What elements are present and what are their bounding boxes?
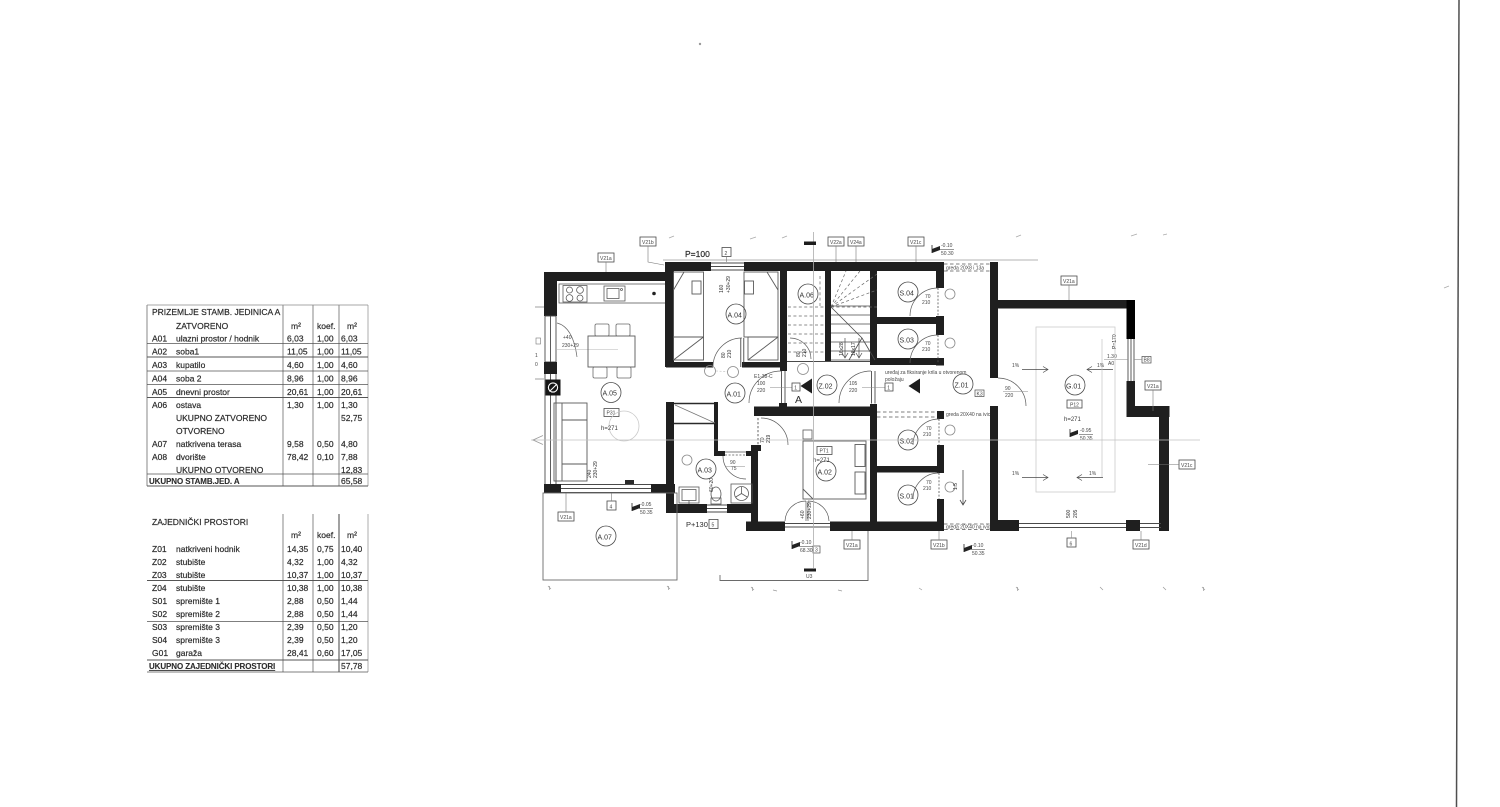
svg-text:V24a: V24a <box>850 240 862 246</box>
svg-text:0,50: 0,50 <box>317 609 334 619</box>
svg-text:položaju: položaju <box>885 377 904 383</box>
svg-text:0,75: 0,75 <box>317 544 334 554</box>
svg-text:160: 160 <box>719 284 725 293</box>
svg-text:stubište: stubište <box>176 583 206 593</box>
svg-text:G01: G01 <box>152 648 168 658</box>
svg-text:natkriveni hodnik: natkriveni hodnik <box>176 544 241 554</box>
svg-text:Z02: Z02 <box>152 557 167 567</box>
svg-text:spremište 2: spremište 2 <box>176 609 220 619</box>
svg-text:1%: 1% <box>1012 471 1020 477</box>
svg-text:28,41: 28,41 <box>287 648 309 658</box>
svg-text:50.35: 50.35 <box>972 551 985 557</box>
svg-text:uređaj za fiksiranje krila u o: uređaj za fiksiranje krila u otvorenom <box>885 370 966 376</box>
svg-text:1,00: 1,00 <box>317 570 334 580</box>
svg-text:A.06: A.06 <box>800 293 815 300</box>
svg-text:Z01: Z01 <box>152 544 167 554</box>
svg-text:V21a: V21a <box>846 543 858 549</box>
svg-text:B8: B8 <box>1144 358 1150 364</box>
svg-text:A04: A04 <box>152 374 167 384</box>
svg-text:60+20: 60+20 <box>709 478 715 492</box>
svg-text:greda 20X40 na ivic: greda 20X40 na ivic <box>946 525 991 531</box>
svg-text:ostava: ostava <box>176 400 201 410</box>
svg-text:0,60: 0,60 <box>317 648 334 658</box>
svg-text:stubište: stubište <box>176 570 206 580</box>
svg-text:57,78: 57,78 <box>341 661 363 671</box>
svg-text:210: 210 <box>727 349 733 358</box>
svg-text:UKUPNO ZATVORENO: UKUPNO ZATVORENO <box>176 413 267 423</box>
svg-text:105: 105 <box>849 381 858 387</box>
svg-text:dvorište: dvorište <box>176 452 206 462</box>
svg-text:Z.01: Z.01 <box>955 383 969 390</box>
svg-text:S01: S01 <box>152 596 167 606</box>
svg-text:Z04: Z04 <box>152 583 167 593</box>
svg-text:A01: A01 <box>152 334 167 344</box>
svg-text:V21c: V21c <box>1181 463 1193 469</box>
svg-text:2,88: 2,88 <box>287 596 304 606</box>
svg-text:0,50: 0,50 <box>317 635 334 645</box>
svg-text:0,10: 0,10 <box>317 452 334 462</box>
svg-text:Z.02: Z.02 <box>819 384 833 391</box>
svg-text:m²: m² <box>291 321 301 331</box>
svg-text:A03: A03 <box>152 360 167 370</box>
svg-text:230+29: 230+29 <box>593 461 599 478</box>
svg-text:4,80: 4,80 <box>341 439 358 449</box>
svg-text:V21a: V21a <box>1147 384 1159 390</box>
svg-text:+60: +60 <box>800 510 806 519</box>
svg-text:90: 90 <box>1005 386 1011 392</box>
svg-text:8,96: 8,96 <box>287 374 304 384</box>
svg-text:18x17: 18x17 <box>851 342 857 356</box>
svg-text:100: 100 <box>757 381 766 387</box>
svg-text:+40: +40 <box>563 335 572 341</box>
svg-text:UKUPNO OTVORENO: UKUPNO OTVORENO <box>176 465 264 475</box>
svg-text:68.30: 68.30 <box>800 548 813 554</box>
svg-text:6: 6 <box>1070 542 1073 548</box>
svg-text:A.04: A.04 <box>728 313 743 320</box>
svg-text:7,88: 7,88 <box>341 452 358 462</box>
svg-text:A07: A07 <box>152 439 167 449</box>
svg-text:ZATVORENO: ZATVORENO <box>176 321 229 331</box>
svg-text:S.04: S.04 <box>900 291 915 298</box>
svg-text:V21d: V21d <box>1135 543 1147 549</box>
svg-text:-0.10: -0.10 <box>941 243 953 249</box>
svg-text:1,00: 1,00 <box>317 387 334 397</box>
svg-text:10,38: 10,38 <box>287 583 309 593</box>
svg-text:PRIZEMLJE STAMB. JEDINICA A: PRIZEMLJE STAMB. JEDINICA A <box>152 307 281 317</box>
svg-text:14,35: 14,35 <box>287 544 309 554</box>
svg-text:koef.: koef. <box>317 530 335 540</box>
svg-text:A.01: A.01 <box>727 392 742 399</box>
svg-text:1,44: 1,44 <box>341 609 358 619</box>
svg-text:1,20: 1,20 <box>341 622 358 632</box>
svg-text:A.02: A.02 <box>818 470 833 477</box>
svg-text:50.35: 50.35 <box>1080 436 1093 442</box>
svg-text:garaža: garaža <box>176 648 202 658</box>
svg-text:220: 220 <box>849 388 858 394</box>
svg-text:1,00: 1,00 <box>317 400 334 410</box>
svg-text:9,58: 9,58 <box>287 439 304 449</box>
svg-text:1.30: 1.30 <box>1107 354 1117 360</box>
svg-text:A06: A06 <box>152 400 167 410</box>
svg-text:1,00: 1,00 <box>317 374 334 384</box>
svg-text:spremište 3: spremište 3 <box>176 635 220 645</box>
svg-text:G.01: G.01 <box>1066 384 1081 391</box>
svg-text:P12: P12 <box>1070 403 1079 409</box>
svg-text:-0.10: -0.10 <box>972 543 984 549</box>
svg-text:210: 210 <box>802 348 808 357</box>
svg-text:4: 4 <box>610 505 613 511</box>
svg-text:spremište 3: spremište 3 <box>176 622 220 632</box>
svg-text:78,42: 78,42 <box>287 452 309 462</box>
svg-text:UKUPNO ZAJEDNIČKI PROSTORI: UKUPNO ZAJEDNIČKI PROSTORI <box>149 662 275 671</box>
svg-text:greda 20X8 i 13a: greda 20X8 i 13a <box>946 266 984 272</box>
svg-text:koef.: koef. <box>317 321 335 331</box>
svg-text:A05: A05 <box>152 387 167 397</box>
svg-text:65,58: 65,58 <box>341 476 363 486</box>
svg-text:20,61: 20,61 <box>341 387 363 397</box>
svg-text:1,00: 1,00 <box>317 334 334 344</box>
svg-text:11,05: 11,05 <box>287 347 308 357</box>
svg-text:3: 3 <box>815 548 818 554</box>
svg-text:kupatilo: kupatilo <box>176 360 206 370</box>
svg-text:ZAJEDNIČKI PROSTORI: ZAJEDNIČKI PROSTORI <box>152 517 248 527</box>
svg-text:8,96: 8,96 <box>341 374 358 384</box>
svg-text:4,60: 4,60 <box>341 360 358 370</box>
svg-text:ulazni prostor / hodnik: ulazni prostor / hodnik <box>176 334 260 344</box>
svg-text:16x28: 16x28 <box>839 342 845 356</box>
svg-text:1,00: 1,00 <box>317 360 334 370</box>
svg-text:P+130: P+130 <box>686 520 708 529</box>
svg-text:Z03: Z03 <box>152 570 167 580</box>
svg-text:1,00: 1,00 <box>317 347 334 357</box>
svg-text:11,05: 11,05 <box>341 347 362 357</box>
svg-text:1,44: 1,44 <box>341 596 358 606</box>
svg-text:205: 205 <box>1073 509 1079 518</box>
svg-text:6,03: 6,03 <box>341 334 358 344</box>
svg-text:20,61: 20,61 <box>287 387 309 397</box>
svg-text:52,75: 52,75 <box>341 413 363 423</box>
svg-text:-0.95: -0.95 <box>1080 428 1092 434</box>
svg-text:A0: A0 <box>1108 361 1114 367</box>
svg-text:0,50: 0,50 <box>317 596 334 606</box>
svg-text:12,83: 12,83 <box>341 465 363 475</box>
svg-text:210: 210 <box>922 347 931 353</box>
svg-text:1: 1 <box>887 386 890 392</box>
svg-text:2,88: 2,88 <box>287 609 304 619</box>
svg-text:A02: A02 <box>152 347 167 357</box>
svg-text:10,37: 10,37 <box>287 570 309 580</box>
svg-text:A: A <box>795 394 802 406</box>
svg-text:A.03: A.03 <box>698 468 713 475</box>
svg-text:220: 220 <box>1005 393 1014 399</box>
svg-text:1,20: 1,20 <box>341 635 358 645</box>
svg-text:soba1: soba1 <box>176 347 199 357</box>
svg-text:75: 75 <box>731 466 737 472</box>
svg-text:1,30: 1,30 <box>341 400 358 410</box>
svg-text:0,50: 0,50 <box>317 622 334 632</box>
svg-text:6,03: 6,03 <box>287 334 304 344</box>
svg-text:P31: P31 <box>607 411 616 417</box>
svg-text:K3: K3 <box>977 392 983 398</box>
svg-text:S.02: S.02 <box>900 439 915 446</box>
svg-text:2,39: 2,39 <box>287 622 304 632</box>
svg-text:A.05: A.05 <box>603 391 618 398</box>
svg-text:V22a: V22a <box>830 240 842 246</box>
svg-text:m²: m² <box>291 530 301 540</box>
svg-text:1,30: 1,30 <box>287 400 304 410</box>
svg-text:greda 20X40 na ivic: greda 20X40 na ivic <box>946 412 991 418</box>
svg-text:210: 210 <box>922 300 931 306</box>
svg-text:V21b: V21b <box>642 240 654 246</box>
svg-text:UKUPNO STAMB.JED. A: UKUPNO STAMB.JED. A <box>149 477 240 486</box>
svg-text:V21a: V21a <box>1063 279 1075 285</box>
svg-text:220: 220 <box>757 388 766 394</box>
svg-text:50.35: 50.35 <box>640 510 653 516</box>
svg-text:U3: U3 <box>806 574 813 580</box>
svg-text:1%: 1% <box>1089 471 1097 477</box>
svg-text:1.5: 1.5 <box>953 483 959 490</box>
svg-text:A.07: A.07 <box>598 535 613 542</box>
svg-text:S.03: S.03 <box>900 338 915 345</box>
svg-text:A08: A08 <box>152 452 167 462</box>
svg-text:h=271: h=271 <box>601 426 619 432</box>
svg-text:1: 1 <box>794 386 797 392</box>
svg-text:10,37: 10,37 <box>341 570 363 580</box>
svg-text:-0.10: -0.10 <box>800 540 812 546</box>
svg-text:219: 219 <box>766 434 772 443</box>
svg-text:stubište: stubište <box>176 557 206 567</box>
svg-text:h=271: h=271 <box>1064 417 1082 423</box>
svg-text:dnevni prostor: dnevni prostor <box>176 387 230 397</box>
svg-text:17,05: 17,05 <box>341 648 363 658</box>
svg-text:230+29: 230+29 <box>807 502 813 519</box>
svg-text:OTVORENO: OTVORENO <box>176 426 225 436</box>
svg-text:1,00: 1,00 <box>317 583 334 593</box>
svg-text:E1-38-C: E1-38-C <box>754 374 773 380</box>
svg-text:PT1: PT1 <box>820 449 829 455</box>
svg-text:210: 210 <box>923 486 932 492</box>
svg-text:+30+29: +30+29 <box>726 276 732 293</box>
svg-text:10,38: 10,38 <box>341 583 363 593</box>
svg-text:V21a: V21a <box>600 256 612 262</box>
svg-text:210: 210 <box>923 432 932 438</box>
svg-text:230+29: 230+29 <box>562 343 579 349</box>
svg-text:1%: 1% <box>1097 363 1105 369</box>
svg-text:soba 2: soba 2 <box>176 374 202 384</box>
svg-text:1,00: 1,00 <box>317 557 334 567</box>
svg-text:4,32: 4,32 <box>341 557 358 567</box>
svg-text:V21b: V21b <box>933 543 945 549</box>
svg-text:S04: S04 <box>152 635 167 645</box>
svg-text:-0.05: -0.05 <box>640 502 652 508</box>
svg-text:P=100: P=100 <box>685 249 710 259</box>
svg-text:V21c: V21c <box>910 240 922 246</box>
svg-text:S.01: S.01 <box>900 494 915 501</box>
svg-text:0,50: 0,50 <box>317 439 334 449</box>
svg-text:1%: 1% <box>1012 363 1020 369</box>
svg-text:4,32: 4,32 <box>287 557 304 567</box>
svg-text:50.30: 50.30 <box>941 251 954 257</box>
svg-text:spremište 1: spremište 1 <box>176 596 220 606</box>
svg-text:m²: m² <box>347 321 357 331</box>
svg-text:0: 0 <box>535 362 538 368</box>
svg-text:V21a: V21a <box>560 515 572 521</box>
svg-text:natkrivena terasa: natkrivena terasa <box>176 439 241 449</box>
svg-text:2: 2 <box>725 251 728 257</box>
svg-text:500: 500 <box>1066 509 1072 518</box>
svg-text:4,60: 4,60 <box>287 360 304 370</box>
svg-text:5: 5 <box>712 523 715 529</box>
svg-text:S03: S03 <box>152 622 167 632</box>
svg-text:2,39: 2,39 <box>287 635 304 645</box>
svg-text:10,40: 10,40 <box>341 544 363 554</box>
svg-text:S02: S02 <box>152 609 167 619</box>
svg-text:1: 1 <box>535 353 538 359</box>
svg-text:m²: m² <box>347 530 357 540</box>
